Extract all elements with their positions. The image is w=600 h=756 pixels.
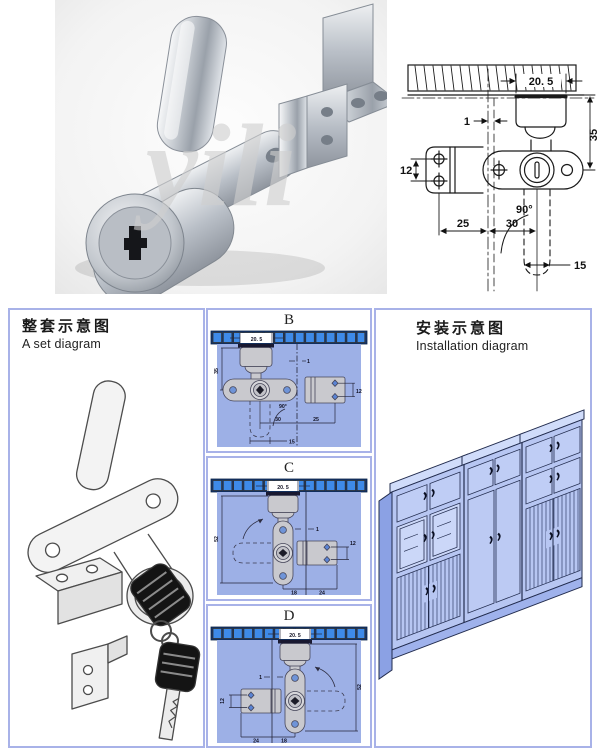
c-bracket bbox=[297, 541, 337, 565]
b-bracket bbox=[305, 377, 345, 403]
c-dim-height: 52 bbox=[214, 536, 220, 542]
b-dim-width: 20. 5 bbox=[251, 337, 263, 343]
b-dim-height: 35 bbox=[214, 368, 220, 374]
view-d-panel: D bbox=[206, 604, 372, 748]
d-dim-width: 20. 5 bbox=[289, 633, 301, 639]
strike-bracket bbox=[426, 147, 483, 193]
c-dim-24: 24 bbox=[319, 591, 325, 597]
d-dim-18: 18 bbox=[281, 739, 287, 745]
set-bracket-small bbox=[72, 636, 127, 709]
dim-30: 30 bbox=[506, 218, 518, 230]
view-d-label: D bbox=[208, 606, 370, 626]
dim-cam: 15 bbox=[574, 260, 586, 272]
d-dim-24: 24 bbox=[253, 739, 259, 745]
dim-25: 25 bbox=[457, 218, 469, 230]
view-c-label: C bbox=[208, 458, 370, 478]
dim-height: 35 bbox=[588, 129, 600, 141]
installation-cabinets bbox=[376, 405, 590, 740]
set-diagram-art bbox=[10, 354, 203, 746]
dim-angle: 90° bbox=[516, 204, 533, 216]
catalog-page: yili bbox=[0, 0, 600, 756]
watermark-text: yili bbox=[134, 100, 297, 231]
dim-offset: 1 bbox=[464, 116, 470, 128]
b-dim-25: 25 bbox=[313, 417, 319, 423]
product-photo: yili bbox=[55, 0, 387, 294]
set-title-zh: 整套示意图 bbox=[22, 318, 112, 337]
d-dim-height: 52 bbox=[357, 684, 363, 690]
cabinet-row bbox=[390, 410, 584, 660]
view-d-drawing: 20. 5 52 1 12 24 18 bbox=[209, 625, 369, 747]
dimension-drawing: 20. 5 1 35 12 90° 25 30 15 bbox=[398, 55, 600, 295]
view-c-panel: C bbox=[206, 456, 372, 601]
b-dim-30: 30 bbox=[275, 417, 281, 423]
view-b-drawing: 20. 5 35 1 12 90° 30 25 15 bbox=[209, 329, 369, 451]
set-diagram-panel: 整套示意图 A set diagram bbox=[8, 308, 205, 748]
d-dim-offset: 1 bbox=[259, 675, 262, 681]
view-b-panel: B bbox=[206, 308, 372, 453]
dim-width: 20. 5 bbox=[529, 76, 553, 88]
b-strip-cells bbox=[213, 333, 365, 343]
set-key-inserted bbox=[127, 560, 194, 630]
d-dim-bracket: 12 bbox=[220, 698, 226, 704]
b-dim-cam: 15 bbox=[289, 440, 295, 446]
dim-bracket: 12 bbox=[400, 165, 412, 177]
lock-outline bbox=[483, 95, 583, 189]
b-dim-angle: 90° bbox=[279, 404, 287, 410]
c-dim-offset: 1 bbox=[316, 527, 319, 533]
install-title-en: Installation diagram bbox=[416, 339, 528, 353]
b-dim-bracket: 12 bbox=[356, 389, 362, 395]
b-dim-offset: 1 bbox=[307, 359, 310, 365]
view-c-drawing: 20. 5 52 1 12 18 24 bbox=[209, 477, 369, 599]
cabinet-side-face bbox=[379, 492, 392, 679]
set-title-en: A set diagram bbox=[22, 337, 112, 351]
set-key-second bbox=[146, 641, 201, 742]
d-bracket bbox=[241, 689, 281, 713]
c-dim-18: 18 bbox=[291, 591, 297, 597]
view-b-label: B bbox=[208, 310, 370, 330]
c-dim-width: 20. 5 bbox=[277, 485, 289, 491]
install-title-zh: 安装示意图 bbox=[416, 320, 528, 339]
set-cam-blade bbox=[74, 378, 128, 492]
c-dim-bracket: 12 bbox=[350, 541, 356, 547]
installation-panel: 安装示意图 Installation diagram bbox=[374, 308, 592, 748]
